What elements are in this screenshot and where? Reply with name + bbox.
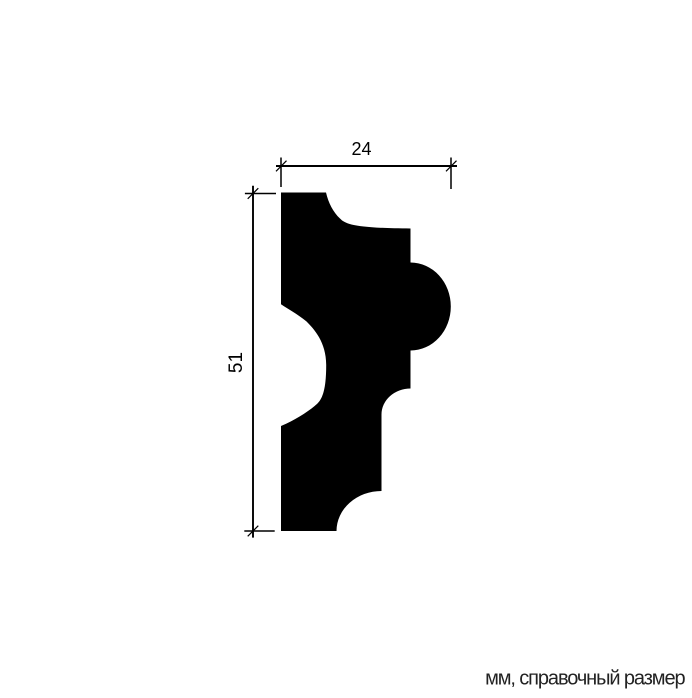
svg-text:24: 24	[351, 139, 371, 159]
svg-text:мм, справочный размер: мм, справочный размер	[485, 668, 685, 690]
svg-text:51: 51	[226, 352, 247, 373]
